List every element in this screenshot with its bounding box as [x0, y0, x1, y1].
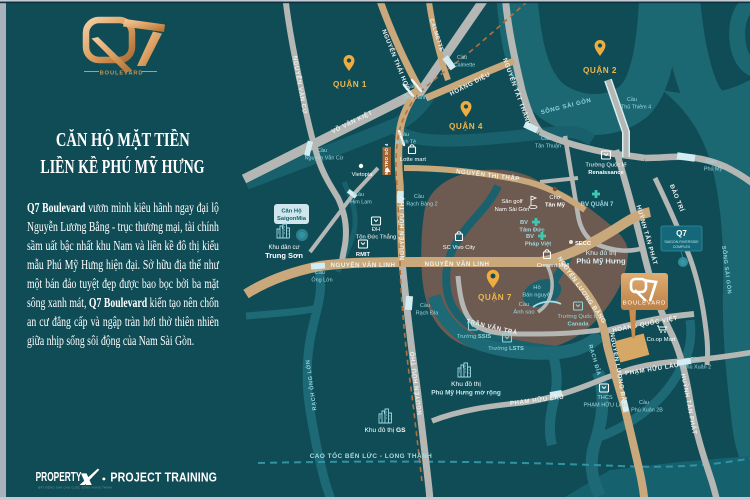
svg-text:Lotte mart: Lotte mart [400, 157, 426, 163]
svg-text:PHẠM HỮU LẦU: PHẠM HỮU LẦU [583, 402, 626, 409]
svg-text:Him Lam: Him Lam [350, 200, 372, 206]
svg-text:Cầu: Cầu [420, 303, 430, 309]
svg-text:SC Vivo City: SC Vivo City [443, 245, 476, 251]
svg-text:THCS: THCS [597, 395, 612, 401]
svg-text:Tân Thuận: Tân Thuận [535, 144, 561, 150]
svg-text:Căn Hộ: Căn Hộ [281, 209, 302, 215]
svg-text:Rạch Bàng 2: Rạch Bàng 2 [406, 202, 437, 208]
svg-text:Ông Lớn: Ông Lớn [311, 277, 332, 284]
svg-text:BẤT ĐỘNG SẢN CHO CUỘC SỐNG HƯN: BẤT ĐỘNG SẢN CHO CUỘC SỐNG HƯNG THỊNH [38, 485, 111, 490]
svg-text:Ánh sao: Ánh sao [513, 309, 534, 316]
svg-text:Bán nguyệt: Bán nguyệt [522, 293, 552, 299]
svg-text:SAIGON RIVERSIDE: SAIGON RIVERSIDE [664, 240, 699, 244]
svg-text:Canada: Canada [568, 322, 590, 328]
svg-text:Cầu: Cầu [706, 159, 716, 165]
svg-text:Thủ Thiêm 4: Thủ Thiêm 4 [621, 104, 651, 111]
svg-text:Sân golf: Sân golf [501, 199, 523, 205]
svg-text:BV QUẬN 7: BV QUẬN 7 [581, 201, 614, 208]
svg-text:Khu đô thị: Khu đô thị [451, 381, 481, 388]
svg-text:Khu đô thị GS: Khu đô thị GS [364, 427, 406, 434]
svg-text:Cầu: Cầu [406, 84, 416, 90]
svg-text:NGUYỄN VĂN LINH: NGUYỄN VĂN LINH [425, 261, 490, 268]
svg-text:NGUYỄN VĂN LINH: NGUYỄN VĂN LINH [331, 262, 396, 269]
svg-text:NGUYỄN HỮU THỌ: NGUYỄN HỮU THỌ [399, 196, 406, 260]
svg-text:Hồ: Hồ [533, 285, 540, 291]
svg-text:Cầu: Cầu [541, 136, 551, 142]
svg-text:Ông Lãnh: Ông Lãnh [403, 94, 427, 101]
svg-text:Rạch Đìa: Rạch Đìa [416, 311, 438, 317]
svg-text:QUẬN 7: QUẬN 7 [478, 291, 512, 302]
svg-text:Trung Sơn: Trung Sơn [265, 251, 303, 260]
svg-text:QUẬN 1: QUẬN 1 [333, 78, 367, 89]
svg-text:Phú Mỹ Hưng mở rộng: Phú Mỹ Hưng mở rộng [431, 390, 501, 397]
svg-text:Trường Quốc tế: Trường Quốc tế [585, 163, 627, 169]
svg-text:PROPERTY: PROPERTY [36, 470, 82, 484]
svg-text:Cầu: Cầu [399, 132, 409, 138]
svg-text:RMIT: RMIT [356, 252, 371, 258]
svg-text:Cầu: Cầu [414, 194, 424, 200]
svg-text:Trường LSTS: Trường LSTS [488, 346, 524, 352]
svg-text:COMPLEX: COMPLEX [673, 245, 691, 249]
svg-text:Cầu: Cầu [315, 270, 325, 276]
svg-text:Renaissance: Renaissance [588, 170, 624, 176]
svg-text:Cầu: Cầu [690, 357, 700, 363]
svg-text:Nam Sài Gòn: Nam Sài Gòn [495, 207, 530, 213]
svg-text:Trường Quốc tế: Trường Quốc tế [557, 314, 599, 320]
svg-text:Trường SSIS: Trường SSIS [457, 334, 491, 340]
svg-text:Calmette: Calmette [454, 63, 476, 69]
svg-text:QUẬN 4: QUẬN 4 [449, 120, 483, 131]
svg-text:SaigonMia: SaigonMia [277, 216, 307, 222]
svg-text:ĐH: ĐH [372, 227, 380, 233]
svg-text:Tân Mỹ: Tân Mỹ [545, 203, 566, 209]
svg-text:Cầu: Cầu [317, 148, 327, 154]
svg-text:Cresent Mall: Cresent Mall [537, 263, 570, 269]
svg-text:Tôn Đức Thắng: Tôn Đức Thắng [356, 234, 397, 241]
svg-text:BOULEVARD: BOULEVARD [623, 301, 666, 307]
svg-text:Phú Xuân 2: Phú Xuân 2 [683, 365, 711, 371]
svg-text:PROJECT TRAINING: PROJECT TRAINING [110, 470, 217, 484]
svg-text:Phú Xuân 2B: Phú Xuân 2B [631, 408, 663, 414]
svg-text:BV: BV [520, 220, 528, 226]
svg-text:Pháp Việt: Pháp Việt [525, 242, 551, 248]
svg-text:Vietopia: Vietopia [352, 172, 374, 178]
svg-text:Cầu: Cầu [354, 192, 364, 198]
svg-text:Nguyễn Văn Cừ: Nguyễn Văn Cừ [305, 155, 344, 162]
svg-text:Co.op Mart: Co.op Mart [647, 337, 676, 343]
svg-text:QUẬN 2: QUẬN 2 [583, 64, 617, 75]
svg-text:Cầu: Cầu [457, 55, 467, 61]
svg-text:Phú Mỹ: Phú Mỹ [704, 167, 723, 173]
svg-text:Cầu: Cầu [519, 302, 530, 308]
svg-text:SECC: SECC [575, 241, 592, 247]
svg-text:Cầu: Cầu [639, 400, 649, 406]
svg-text:Chợ: Chợ [549, 195, 560, 201]
svg-text:BV: BV [526, 234, 534, 240]
svg-text:BOULEVARD: BOULEVARD [100, 71, 144, 77]
svg-text:Cầu: Cầu [627, 97, 637, 103]
svg-text:Phú Mỹ Hưng: Phú Mỹ Hưng [576, 257, 626, 266]
svg-text:Q7: Q7 [676, 229, 687, 238]
